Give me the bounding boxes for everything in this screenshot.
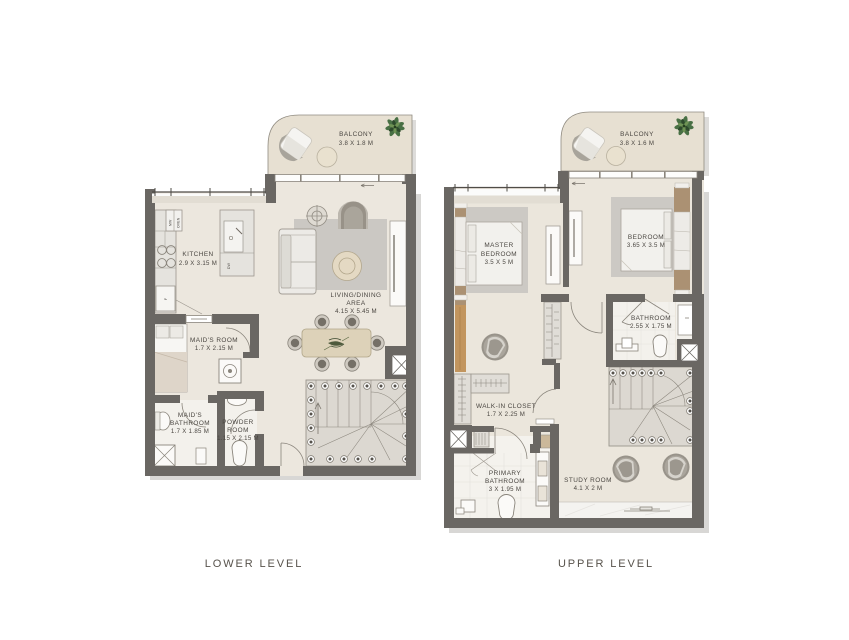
svg-text:BALCONY: BALCONY [339,131,373,138]
svg-text:2.9 X 3.15 M: 2.9 X 3.15 M [179,260,217,267]
svg-text:MAID'S: MAID'S [178,412,202,419]
svg-text:3.8 X 1.6 M: 3.8 X 1.6 M [620,140,654,147]
svg-text:BATHROOM: BATHROOM [170,420,210,427]
svg-text:LOWER LEVEL: LOWER LEVEL [205,558,304,570]
svg-text:4.1 X 2 M: 4.1 X 2 M [574,485,603,492]
svg-text:2.55 X 1.75 M: 2.55 X 1.75 M [630,323,672,330]
svg-text:DW: DW [227,262,231,269]
svg-text:F: F [164,298,168,300]
svg-text:MAID'S ROOM: MAID'S ROOM [190,337,238,344]
svg-text:4.15 X 5.45 M: 4.15 X 5.45 M [335,308,377,315]
svg-text:UPPER LEVEL: UPPER LEVEL [558,558,654,570]
svg-text:1.15 X 2.15 M: 1.15 X 2.15 M [217,435,259,442]
svg-text:AREA: AREA [346,300,365,307]
svg-text:LIVING/DINING: LIVING/DINING [331,292,382,299]
svg-text:3.5 X 5 M: 3.5 X 5 M [485,259,514,266]
svg-text:BEDROOM: BEDROOM [481,251,517,258]
svg-text:1.7 X 2.25 M: 1.7 X 2.25 M [487,411,525,418]
svg-text:WALK-IN CLOSET: WALK-IN CLOSET [476,403,536,410]
svg-text:PRIMARY: PRIMARY [489,470,521,477]
svg-text:KITCHEN: KITCHEN [182,251,213,258]
svg-text:MASTER: MASTER [484,242,513,249]
svg-text:BATHROOM: BATHROOM [485,478,525,485]
svg-text:OVEN: OVEN [177,217,181,228]
svg-text:3.65 X 3.5 M: 3.65 X 3.5 M [627,242,665,249]
svg-text:3 X 1.95 M: 3 X 1.95 M [489,486,521,493]
svg-text:ROOM: ROOM [227,427,249,434]
svg-text:BEDROOM: BEDROOM [628,234,664,241]
svg-text:STUDY ROOM: STUDY ROOM [564,477,612,484]
svg-text:1.7 X 1.85 M: 1.7 X 1.85 M [171,428,209,435]
svg-text:BATHROOM: BATHROOM [631,315,671,322]
svg-text:3.8 X 1.8 M: 3.8 X 1.8 M [339,140,373,147]
svg-text:1.7 X 2.15 M: 1.7 X 2.15 M [195,345,233,352]
svg-text:MW: MW [169,219,173,226]
svg-text:POWDER: POWDER [222,419,253,426]
svg-text:BALCONY: BALCONY [620,131,654,138]
